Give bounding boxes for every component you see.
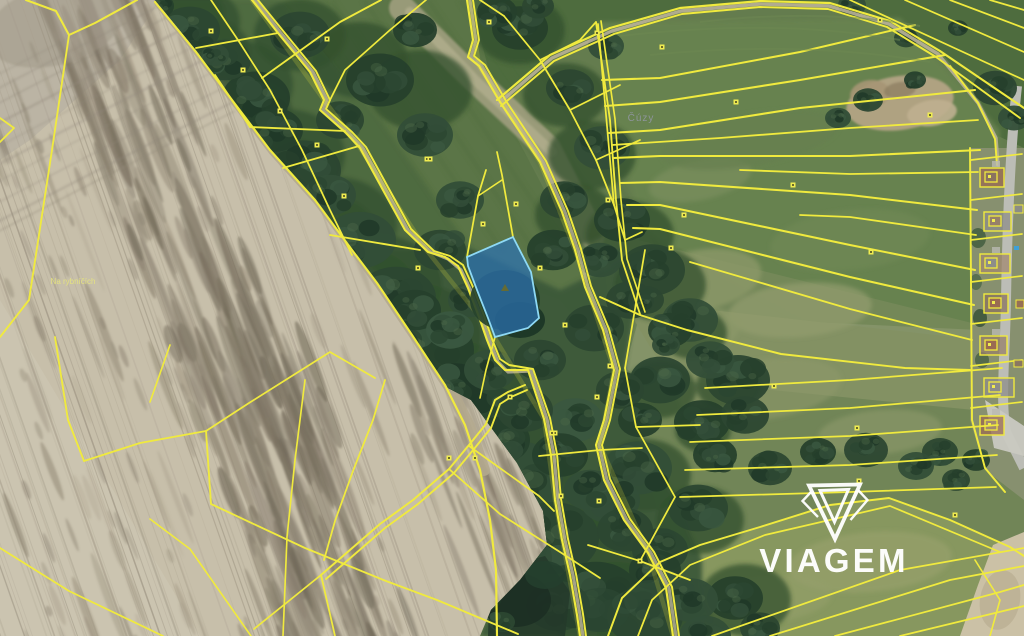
svg-text:Čúzy: Čúzy: [628, 111, 655, 124]
svg-text:VIAGEM: VIAGEM: [759, 542, 908, 579]
svg-text:Na rybníčích: Na rybníčích: [51, 277, 96, 286]
